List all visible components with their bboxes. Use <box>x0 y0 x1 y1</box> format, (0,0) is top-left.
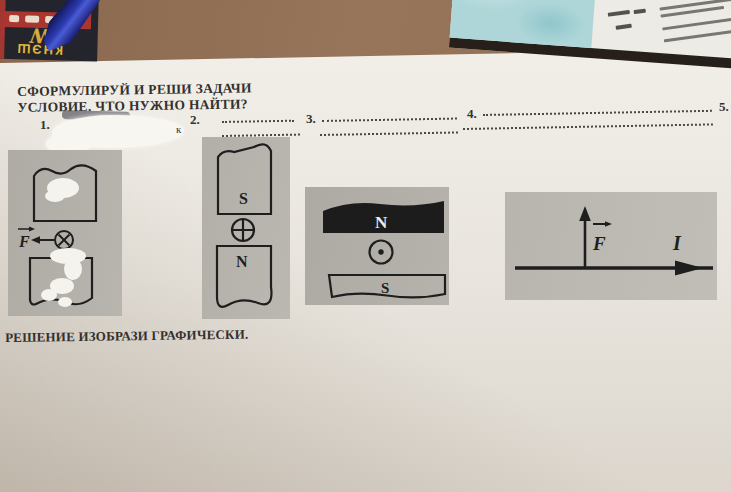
answer-dotline-3a <box>322 118 457 122</box>
item-number-3: 3. <box>306 111 316 127</box>
bottom-pole-label: S <box>381 280 389 296</box>
current-label: I <box>672 232 682 254</box>
item-number-1: 1. <box>40 117 50 133</box>
force-vector-label: F <box>592 221 612 254</box>
heading-line-2: УСЛОВИЕ. ЧТО НУЖНО НАЙТИ? <box>17 96 252 115</box>
worksheet-footer: РЕШЕНИЕ ИЗОБРАЗИ ГРАФИЧЕСКИ. <box>5 327 249 346</box>
notebook-spine-band <box>0 0 6 59</box>
legend-number-mark <box>616 24 632 30</box>
legend-text-line <box>662 17 731 31</box>
force-arrow <box>31 236 54 244</box>
answer-dotline-3b <box>320 131 458 136</box>
force-label: F <box>18 233 30 250</box>
item-number-2: 2. <box>190 112 200 128</box>
atlas-legend <box>600 0 731 63</box>
top-pole-label: N <box>375 213 388 232</box>
correction-fluid-blobs <box>41 178 86 307</box>
notebook-band-mark <box>25 15 39 22</box>
current-direction-arrowhead <box>675 261 703 276</box>
legend-text-line <box>664 27 731 42</box>
notebook-band-mark <box>9 15 19 22</box>
atlas-map-area <box>450 0 598 48</box>
answer-dotline-2a <box>222 120 294 123</box>
worksheet-heading: СФОРМУЛИРУЙ И РЕШИ ЗАДАЧИ УСЛОВИЕ. ЧТО Н… <box>17 80 252 115</box>
current-into-page-icon <box>232 219 254 241</box>
current-into-page-icon <box>55 231 73 249</box>
answer-dotline-4a <box>483 110 712 116</box>
item1-text-fragment: к <box>176 123 181 135</box>
diagram-4-panel: F I <box>505 192 717 300</box>
item-number-5: 5. <box>719 99 729 115</box>
item-number-4: 4. <box>467 106 477 122</box>
diagram-3-panel: N S <box>305 187 449 305</box>
legend-number-mark <box>608 10 630 17</box>
worksheet-paper: СФОРМУЛИРУЙ И РЕШИ ЗАДАЧИ УСЛОВИЕ. ЧТО Н… <box>0 0 731 492</box>
answer-dotline-4b <box>463 123 713 130</box>
top-pole-label: S <box>239 190 248 207</box>
force-label: F <box>592 233 606 254</box>
current-out-of-page-icon <box>370 241 393 264</box>
diagram-1-panel: F <box>8 150 122 316</box>
bottom-pole-label: N <box>236 253 248 270</box>
legend-number-mark <box>634 9 646 15</box>
diagram-2-panel: S N <box>202 137 290 319</box>
force-vector-label: F <box>18 227 35 251</box>
force-arrow <box>579 206 591 268</box>
